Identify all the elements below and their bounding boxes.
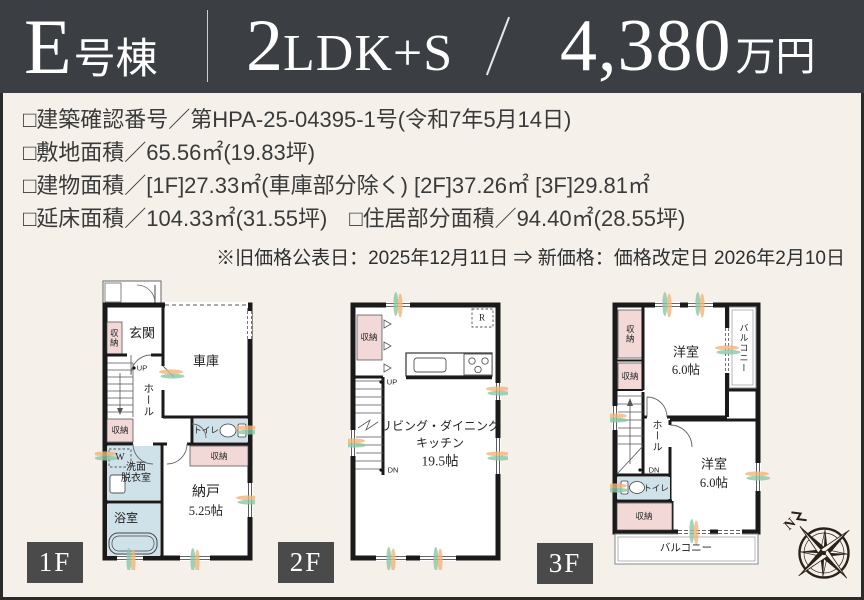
- label-closet2-1f: 収納: [111, 426, 128, 435]
- label-toilet-1f: トイレ: [193, 426, 219, 435]
- label-room1-size: 6.0帖: [672, 364, 700, 377]
- label-closet2-3f: 収納: [621, 372, 638, 381]
- label-hall-3f: ホール: [650, 420, 660, 453]
- layout-number: 2: [246, 0, 283, 93]
- label-washer: W: [115, 453, 124, 463]
- floor-tag-2f: 2F: [278, 542, 334, 583]
- kitchen-counter: [406, 353, 492, 378]
- price-unit: 万円: [736, 24, 816, 82]
- stove: [464, 354, 492, 375]
- label-ldk-line2: キッチン: [416, 437, 464, 449]
- label-ldk-size: 19.5帖: [421, 454, 458, 468]
- label-washroom-2: 脱衣室: [121, 474, 151, 484]
- label-up-1f: UP: [137, 364, 147, 372]
- flyer: E 号棟 2 LDK+S 4,380 万円 □建築確認番号／第HPA-25-04…: [0, 0, 864, 600]
- building-letter: E: [24, 0, 72, 93]
- detail-line-land-area: □敷地面積／65.56㎡(19.83坪): [23, 136, 685, 169]
- label-genkan: 玄関: [129, 327, 155, 340]
- label-storage-size: 5.25帖: [189, 505, 223, 518]
- label-room1: 洋室: [673, 346, 699, 359]
- property-details: □建築確認番号／第HPA-25-04395-1号(令和7年5月14日) □敷地面…: [23, 103, 685, 235]
- floor-tag-3f: 3F: [537, 543, 593, 584]
- compass-rose: N: [778, 495, 864, 600]
- floorplan-3f: 収納 収納 洋室 6.0帖 バルコニー ホール DN トイレ 収納 洋室 6.0…: [610, 278, 770, 570]
- kitchen-sink: [414, 358, 446, 372]
- detail-line-floor-area: □延床面積／104.33㎡(31.55坪) □住居部分面積／94.40㎡(28.…: [23, 202, 685, 235]
- floorplan-3f-drawing: [610, 278, 770, 570]
- detail-line-building-area: □建物面積／[1F]27.33㎡(車庫部分除く) [2F]37.26㎡ [3F]…: [23, 169, 685, 202]
- label-up-2f: UP: [387, 378, 397, 386]
- label-bath: 浴室: [114, 512, 138, 524]
- label-storage-room: 納戸: [192, 486, 220, 500]
- layout-type: 2 LDK+S: [246, 0, 453, 93]
- toilet-bowl: [220, 424, 236, 437]
- label-garage: 車庫: [193, 355, 219, 368]
- label-fridge: R: [479, 314, 485, 323]
- floorplan-2f: 収納 R UP DN リビング・ダイニング キッチン 19.5帖: [348, 278, 508, 570]
- floor-tag-1f: 1F: [27, 542, 83, 583]
- layout-letters: LDK+S: [283, 24, 453, 83]
- slash-divider: [486, 17, 510, 75]
- label-balcony-side: バルコニー: [739, 323, 748, 373]
- compass-north-label: N: [782, 516, 800, 534]
- label-room2-size: 6.0帖: [700, 477, 728, 490]
- label-closet3-3f: 収納: [635, 512, 652, 521]
- label-closet-2f: 収納: [360, 333, 377, 342]
- building-suffix: 号棟: [74, 25, 158, 86]
- label-washroom-1: 洗面: [126, 463, 146, 473]
- label-dn-2f: DN: [388, 466, 399, 474]
- header-divider: [207, 10, 208, 82]
- label-ldk-line1: リビング・ダイニング: [380, 420, 500, 432]
- label-balcony-bottom: バルコニー: [660, 544, 712, 555]
- price: 4,380 万円: [560, 0, 816, 93]
- label-closet3-1f: 収納: [210, 452, 227, 461]
- label-toilet-3f: トイレ: [643, 484, 669, 493]
- building-name: E 号棟: [24, 0, 158, 93]
- entrance-porch: [103, 281, 161, 304]
- detail-line-confirmation: □建築確認番号／第HPA-25-04395-1号(令和7年5月14日): [23, 103, 685, 136]
- label-closet1-1f: 収納: [110, 329, 119, 348]
- label-dn-3f: DN: [649, 466, 660, 474]
- label-hall-1f: ホール: [142, 383, 153, 418]
- floorplan-1f: 玄関 収納 車庫 UP ホール 収納 トイレ W 洗面 脱衣室 収納 納戸 5.…: [95, 278, 255, 570]
- price-amount: 4,380: [560, 0, 732, 93]
- label-room2: 洋室: [701, 458, 727, 471]
- header-bar: E 号棟 2 LDK+S 4,380 万円: [0, 0, 864, 93]
- price-revision-notice: ※旧価格公表日：2025年12月11日 ⇒ 新価格：価格改定日 2026年2月1…: [216, 243, 845, 270]
- label-closet1-3f: 収納: [626, 325, 635, 344]
